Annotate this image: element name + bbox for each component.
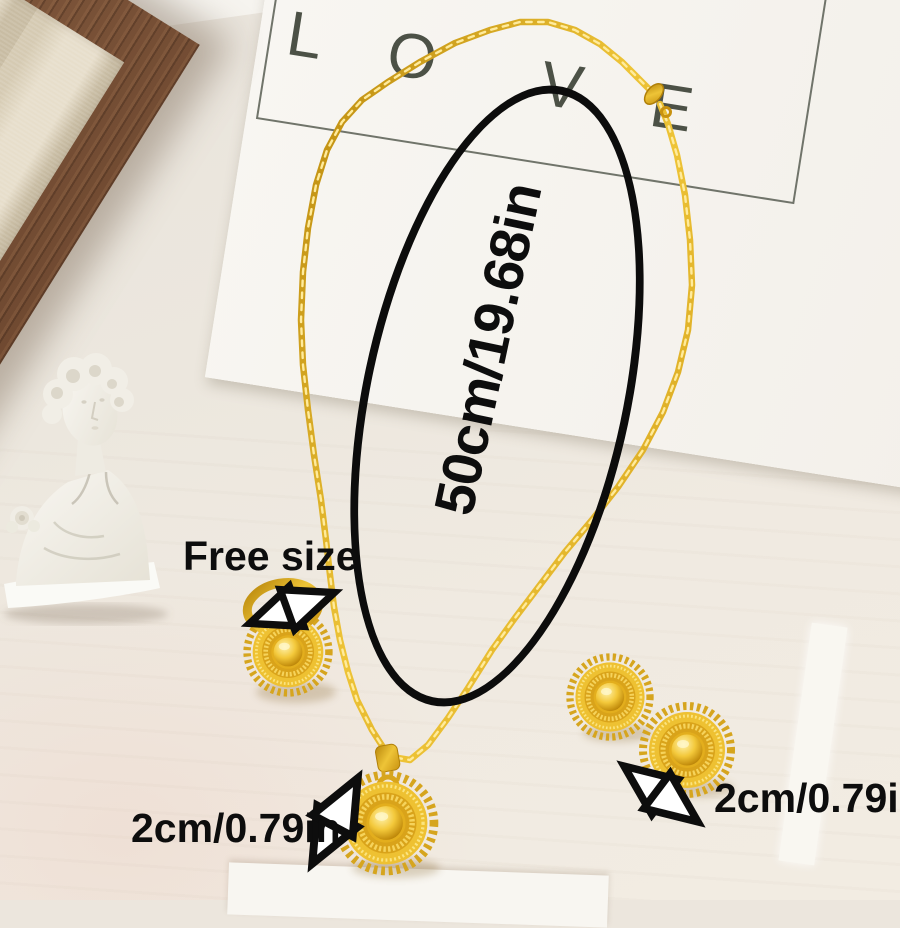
ring-measure-arrow-icon (242, 573, 341, 644)
earring-left (570, 657, 650, 737)
earrings-size-label: 2cm/0.79in (714, 776, 900, 821)
pendant-size-label: 2cm/0.79in (131, 806, 341, 851)
ring-size-label: Free size (183, 534, 359, 579)
